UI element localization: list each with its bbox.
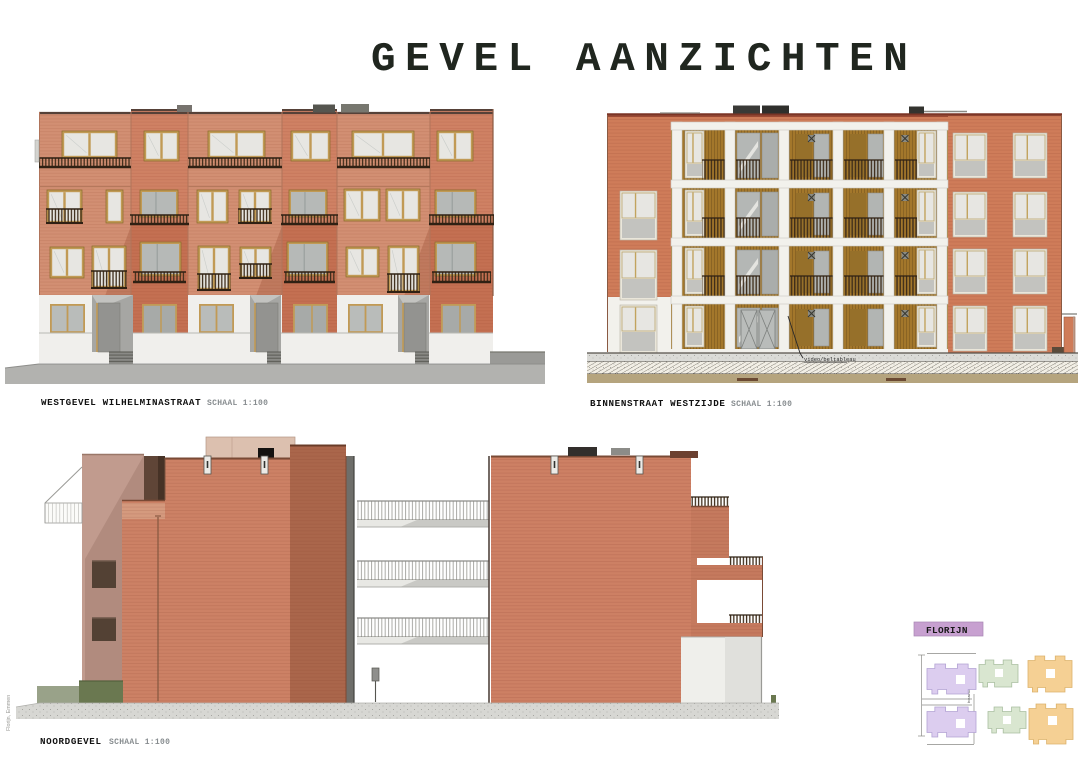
svg-text:SCHAAL 1:100: SCHAAL 1:100 <box>731 400 792 409</box>
svg-text:FLORIJN: FLORIJN <box>926 625 968 636</box>
svg-text:Florijn, Emmen: Florijn, Emmen <box>6 695 12 731</box>
svg-text:SCHAAL 1:100: SCHAAL 1:100 <box>109 738 170 747</box>
svg-text:video/beltableau: video/beltableau <box>804 357 856 363</box>
svg-text:BINNENSTRAAT WESTZIJDE: BINNENSTRAAT WESTZIJDE <box>590 398 726 409</box>
svg-text:SCHAAL 1:100: SCHAAL 1:100 <box>207 399 268 408</box>
svg-text:NOORDGEVEL: NOORDGEVEL <box>40 736 102 747</box>
svg-text:WESTGEVEL WILHELMINASTRAAT: WESTGEVEL WILHELMINASTRAAT <box>41 397 201 408</box>
svg-text:GEVEL AANZICHTEN: GEVEL AANZICHTEN <box>371 37 917 83</box>
